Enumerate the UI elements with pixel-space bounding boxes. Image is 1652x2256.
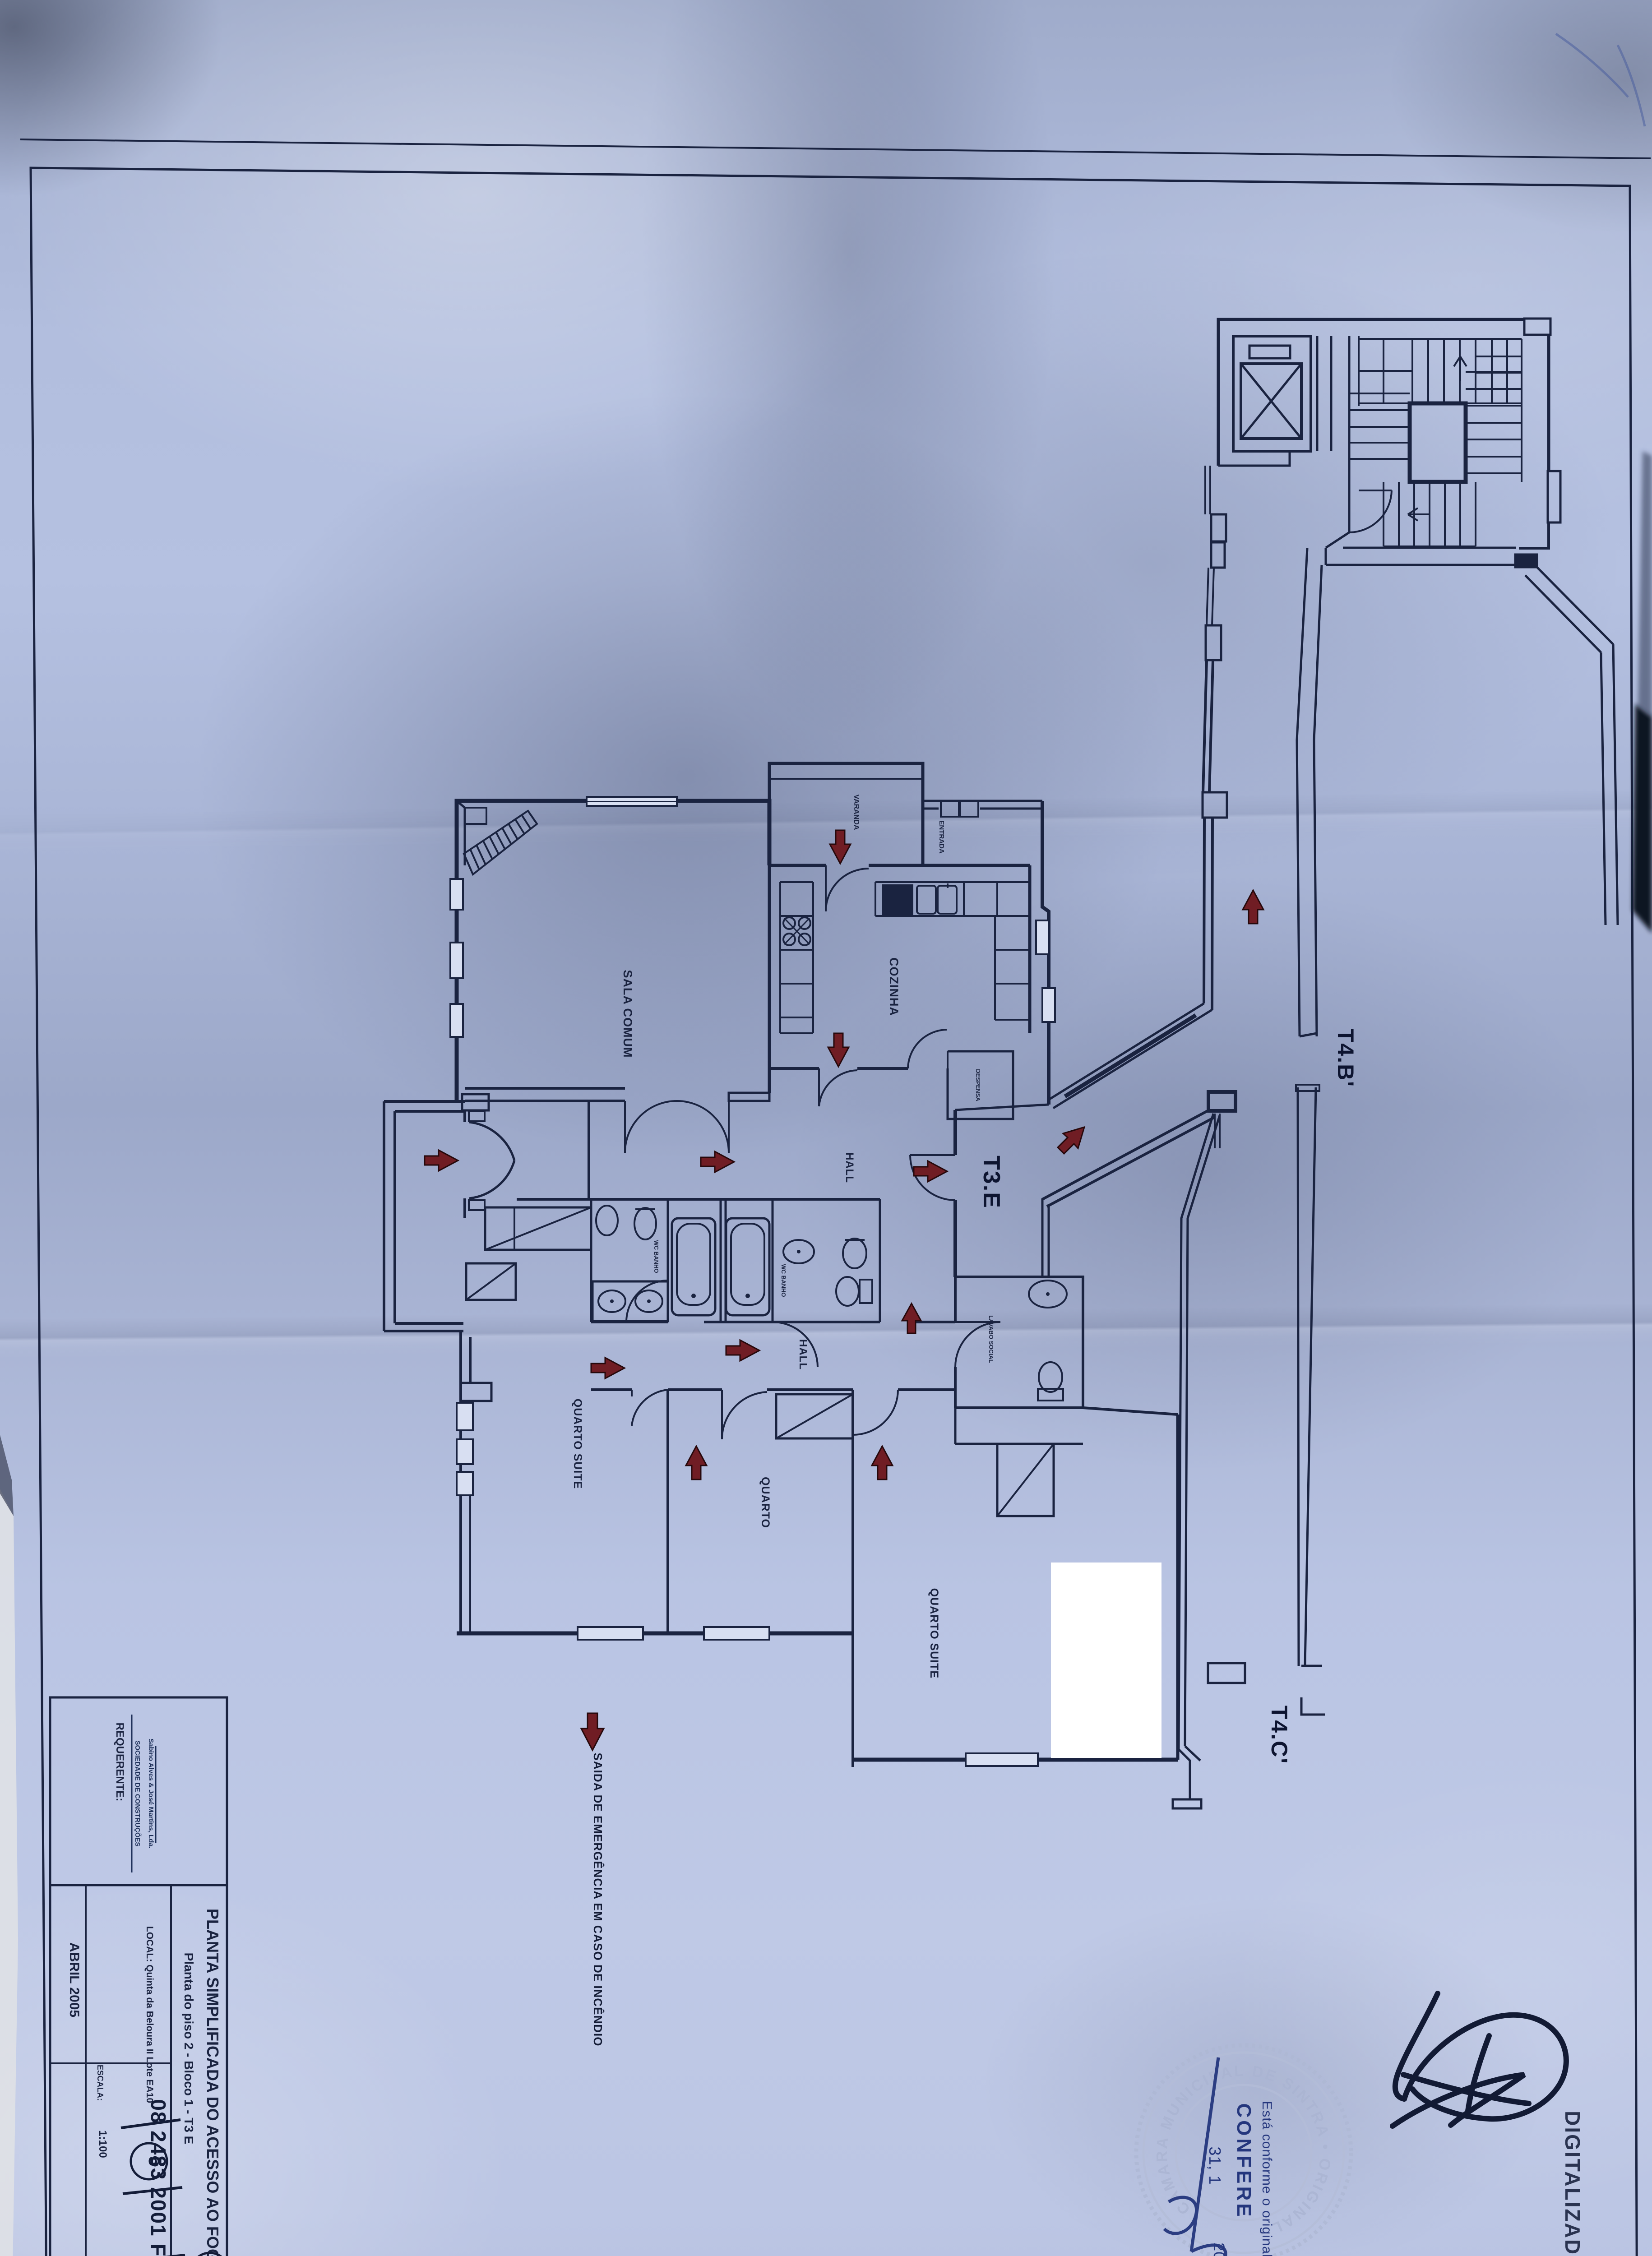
svg-text:HALL: HALL [843, 1152, 856, 1183]
svg-text:ENTRADA: ENTRADA [938, 820, 945, 853]
svg-text:QUARTO: QUARTO [759, 1477, 772, 1528]
svg-text:2019: 2019 [1210, 2242, 1227, 2256]
svg-text:Planta do piso 2 - Bloco 1 - T: Planta do piso 2 - Bloco 1 - T3 E [182, 1953, 196, 2145]
svg-text:Está conforme o original: Está conforme o original [1259, 2101, 1274, 2256]
svg-text:ABRIL 2005: ABRIL 2005 [67, 1942, 82, 2017]
svg-text:T4.B': T4.B' [1333, 1029, 1358, 1087]
svg-text:WC BANHO: WC BANHO [780, 1264, 787, 1297]
svg-text:HALL: HALL [797, 1339, 809, 1370]
svg-text:Sabino Alves & José Martins, L: Sabino Alves & José Martins, Lda. [147, 1738, 155, 1849]
svg-text:WC BANHO: WC BANHO [653, 1240, 660, 1273]
svg-text:REQUERENTE:: REQUERENTE: [114, 1723, 126, 1802]
svg-text:QUARTO SUITE: QUARTO SUITE [928, 1588, 940, 1678]
svg-text:T4.C': T4.C' [1267, 1706, 1292, 1764]
svg-text:VARANDA: VARANDA [852, 795, 860, 830]
svg-text:PLANTA SIMPLIFICADA DO ACESSO: PLANTA SIMPLIFICADA DO ACESSO AO FOGO [204, 1909, 222, 2256]
svg-text:T3.E: T3.E [978, 1156, 1004, 1209]
svg-text:CONFERE: CONFERE [1233, 2103, 1255, 2219]
svg-text:ESCALA:: ESCALA: [96, 2065, 105, 2101]
svg-text:QUARTO SUITE: QUARTO SUITE [571, 1399, 584, 1489]
svg-text:31, 1: 31, 1 [1206, 2146, 1224, 2185]
svg-text:COZINHA: COZINHA [887, 957, 901, 1016]
svg-text:1:100: 1:100 [97, 2130, 109, 2158]
svg-text:SOCIEDADE DE CONSTRUÇÕES: SOCIEDADE DE CONSTRUÇÕES [134, 1740, 142, 1846]
svg-text:SAIDA DE EMERGÊNCIA EM CASO DE: SAIDA DE EMERGÊNCIA EM CASO DE INCÊNDIO [591, 1752, 605, 2046]
svg-text:SALA COMUM: SALA COMUM [621, 970, 634, 1058]
svg-text:LOCAL: Quinta da Beloura II: LOCAL: Quinta da Beloura II Lote EA10 [144, 1926, 155, 2103]
svg-text:5: 5 [145, 2156, 165, 2166]
svg-text:DESPENSA: DESPENSA [975, 1069, 981, 1101]
svg-text:DIGITALIZADO: DIGITALIZADO [1561, 2111, 1584, 2256]
svg-text:LAVABO SOCIAL: LAVABO SOCIAL [988, 1315, 995, 1363]
